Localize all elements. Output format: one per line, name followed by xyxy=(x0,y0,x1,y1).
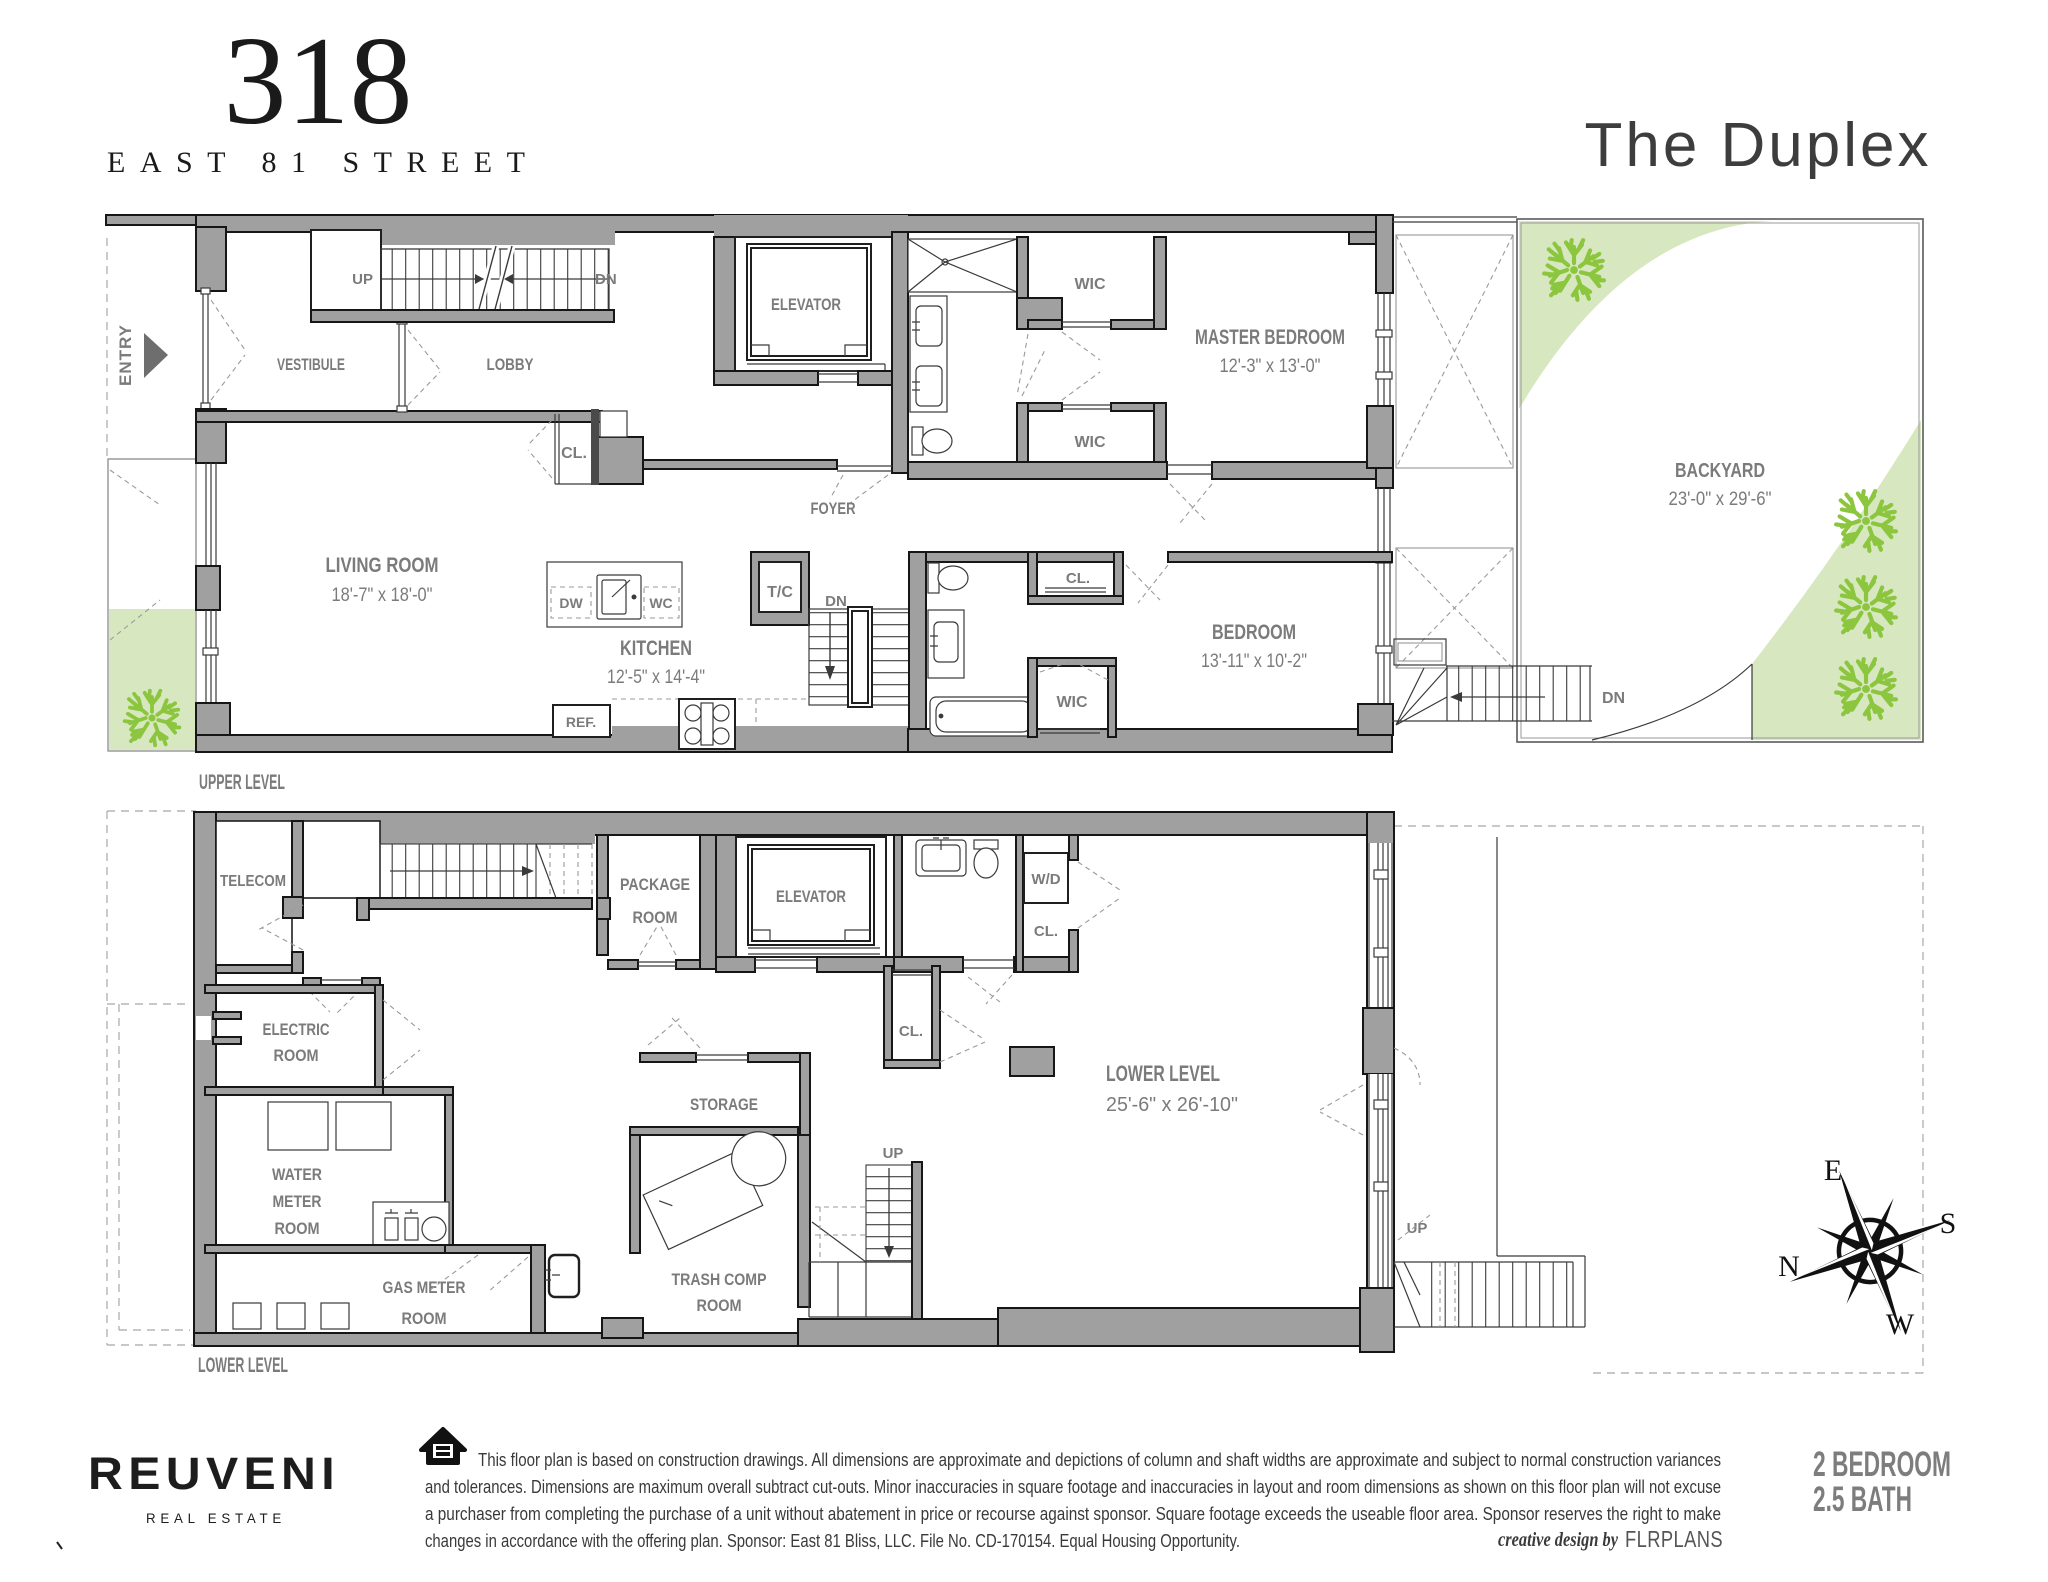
svg-text:25'-6" x 26'-10": 25'-6" x 26'-10" xyxy=(1106,1094,1238,1116)
svg-text:13'-11" x 10'-2": 13'-11" x 10'-2" xyxy=(1201,651,1307,672)
svg-text:REF.: REF. xyxy=(566,714,596,730)
svg-text:CL.: CL. xyxy=(899,1023,923,1040)
svg-text:UP: UP xyxy=(352,271,373,288)
svg-text:23'-0" x 29'-6": 23'-0" x 29'-6" xyxy=(1669,489,1772,510)
svg-text:a purchaser from completing th: a purchaser from completing the purchase… xyxy=(425,1503,1721,1524)
svg-text:ROOM: ROOM xyxy=(697,1297,742,1315)
svg-text:TRASH COMP: TRASH COMP xyxy=(672,1271,767,1289)
svg-text:UP: UP xyxy=(1407,1220,1428,1237)
svg-text:W: W xyxy=(1886,1308,1915,1341)
svg-text:W/D: W/D xyxy=(1031,871,1060,888)
svg-text:LIVING ROOM: LIVING ROOM xyxy=(326,554,439,577)
svg-text:CL.: CL. xyxy=(1034,923,1058,940)
svg-text:VESTIBULE: VESTIBULE xyxy=(277,355,345,374)
svg-text:ELECTRIC: ELECTRIC xyxy=(263,1021,330,1039)
svg-text:T/C: T/C xyxy=(767,584,793,601)
svg-text:S: S xyxy=(1940,1207,1957,1240)
svg-text:2.5 BATH: 2.5 BATH xyxy=(1813,1480,1912,1519)
svg-text:DN: DN xyxy=(595,271,617,288)
svg-text:REAL ESTATE: REAL ESTATE xyxy=(146,1510,286,1526)
svg-text:BEDROOM: BEDROOM xyxy=(1212,621,1296,644)
svg-text:WIC: WIC xyxy=(1074,434,1106,451)
svg-text:BACKYARD: BACKYARD xyxy=(1675,460,1765,482)
svg-text:N: N xyxy=(1778,1250,1800,1283)
svg-text:DN: DN xyxy=(1602,690,1625,707)
svg-text:METER: METER xyxy=(273,1193,322,1211)
svg-text:FLRPLANS: FLRPLANS xyxy=(1625,1526,1723,1552)
svg-text:UP: UP xyxy=(883,1145,904,1162)
svg-text:CL.: CL. xyxy=(561,445,587,462)
svg-text:318: 318 xyxy=(224,12,413,151)
svg-text:GAS METER: GAS METER xyxy=(383,1279,466,1297)
svg-text:ROOM: ROOM xyxy=(633,909,678,927)
svg-text:ENTRY: ENTRY xyxy=(116,324,135,386)
svg-text:DW: DW xyxy=(559,595,583,611)
svg-text:18'-7" x 18'-0": 18'-7" x 18'-0" xyxy=(332,585,433,606)
svg-text:WATER: WATER xyxy=(272,1166,322,1184)
svg-text:The Duplex: The Duplex xyxy=(1584,111,1931,180)
svg-text:DN: DN xyxy=(825,593,847,610)
svg-text:PACKAGE: PACKAGE xyxy=(620,876,690,894)
svg-text:ROOM: ROOM xyxy=(274,1047,319,1065)
svg-text:This floor plan is based on co: This floor plan is based on construction… xyxy=(478,1449,1721,1470)
svg-text:STORAGE: STORAGE xyxy=(690,1096,758,1114)
svg-text:CL.: CL. xyxy=(1066,570,1090,587)
svg-text:LOBBY: LOBBY xyxy=(487,355,535,374)
svg-text:WC: WC xyxy=(649,595,672,611)
svg-text:12'-5" x 14'-4": 12'-5" x 14'-4" xyxy=(607,667,705,688)
svg-text:E: E xyxy=(1824,1154,1842,1187)
svg-text:LOWER LEVEL: LOWER LEVEL xyxy=(1106,1061,1220,1086)
svg-text:WIC: WIC xyxy=(1056,694,1088,711)
svg-text:KITCHEN: KITCHEN xyxy=(620,637,692,660)
svg-text:MASTER BEDROOM: MASTER BEDROOM xyxy=(1195,326,1345,349)
svg-text:ROOM: ROOM xyxy=(275,1220,320,1238)
svg-text:2 BEDROOM: 2 BEDROOM xyxy=(1813,1445,1951,1484)
svg-text:LOWER LEVEL: LOWER LEVEL xyxy=(198,1354,288,1377)
svg-text:EAST 81 STREET: EAST 81 STREET xyxy=(107,146,539,179)
svg-text:UPPER LEVEL: UPPER LEVEL xyxy=(199,771,285,794)
svg-text:TELECOM: TELECOM xyxy=(220,873,286,890)
svg-text:ELEVATOR: ELEVATOR xyxy=(776,888,846,906)
svg-text:ELEVATOR: ELEVATOR xyxy=(771,295,841,314)
svg-text:FOYER: FOYER xyxy=(811,499,856,518)
svg-text:REUVENI: REUVENI xyxy=(88,1448,340,1499)
svg-text:creative design by: creative design by xyxy=(1498,1529,1618,1551)
svg-text:ROOM: ROOM xyxy=(402,1310,447,1328)
svg-text:changes in accordance with the: changes in accordance with the offering … xyxy=(425,1530,1240,1551)
svg-text:12'-3" x 13'-0": 12'-3" x 13'-0" xyxy=(1220,356,1321,377)
svg-text:and tolerances. Dimensions are: and tolerances. Dimensions are maximum o… xyxy=(425,1476,1721,1497)
svg-text:WIC: WIC xyxy=(1074,276,1106,293)
